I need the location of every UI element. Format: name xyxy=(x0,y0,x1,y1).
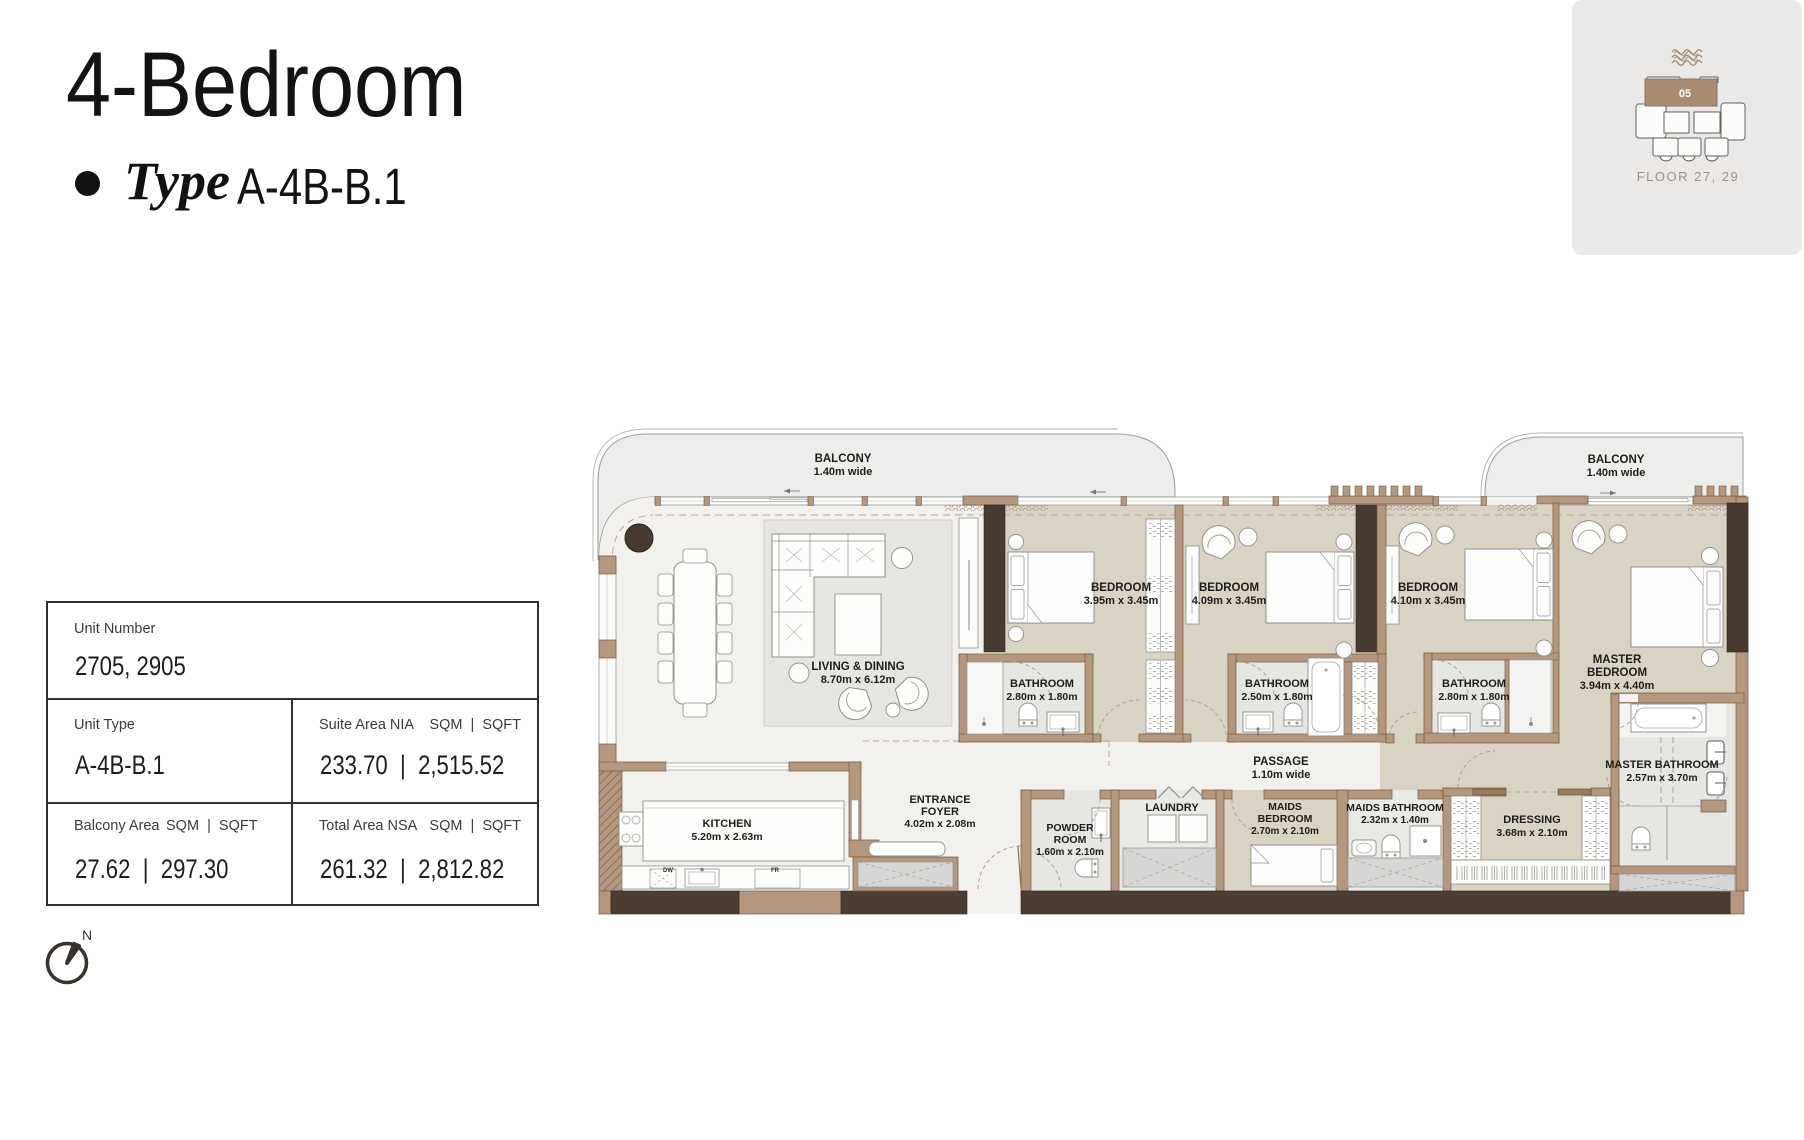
svg-text:ENTRANCE: ENTRANCE xyxy=(909,794,970,806)
svg-text:LIVING & DINING: LIVING & DINING xyxy=(811,661,904,673)
svg-text:2.57m x 3.70m: 2.57m x 3.70m xyxy=(1626,772,1697,784)
svg-text:MAIDS BATHROOM: MAIDS BATHROOM xyxy=(1346,802,1444,814)
svg-text:2.50m x 1.80m: 2.50m x 1.80m xyxy=(1241,691,1312,703)
svg-text:2.80m x 1.80m: 2.80m x 1.80m xyxy=(1006,691,1077,703)
svg-text:POWDER: POWDER xyxy=(1046,822,1094,834)
svg-text:4.10m x 3.45m: 4.10m x 3.45m xyxy=(1391,595,1466,607)
svg-text:2.70m x 2.10m: 2.70m x 2.10m xyxy=(1251,826,1319,837)
svg-text:DW: DW xyxy=(663,868,673,874)
svg-text:1.10m wide: 1.10m wide xyxy=(1252,769,1311,781)
svg-text:3.94m x 4.40m: 3.94m x 4.40m xyxy=(1580,680,1655,692)
svg-text:MAIDS: MAIDS xyxy=(1268,801,1302,813)
svg-text:1.60m x 2.10m: 1.60m x 2.10m xyxy=(1036,847,1104,858)
svg-text:2.80m x 1.80m: 2.80m x 1.80m xyxy=(1438,691,1509,703)
svg-text:BEDROOM: BEDROOM xyxy=(1258,813,1313,825)
svg-text:MASTER: MASTER xyxy=(1593,654,1642,666)
svg-text:BEDROOM: BEDROOM xyxy=(1091,582,1151,594)
svg-text:1.40m wide: 1.40m wide xyxy=(814,466,873,478)
svg-text:BEDROOM: BEDROOM xyxy=(1587,667,1647,679)
svg-text:BATHROOM: BATHROOM xyxy=(1442,678,1506,690)
svg-text:BEDROOM: BEDROOM xyxy=(1199,582,1259,594)
svg-text:BALCONY: BALCONY xyxy=(815,453,872,465)
svg-text:4.09m x 3.45m: 4.09m x 3.45m xyxy=(1192,595,1267,607)
svg-text:BATHROOM: BATHROOM xyxy=(1245,678,1309,690)
svg-text:BALCONY: BALCONY xyxy=(1588,454,1645,466)
svg-text:8.70m x 6.12m: 8.70m x 6.12m xyxy=(821,674,896,686)
svg-text:4.02m x 2.08m: 4.02m x 2.08m xyxy=(904,818,975,830)
svg-text:PASSAGE: PASSAGE xyxy=(1253,756,1309,768)
svg-text:5.20m x 2.63m: 5.20m x 2.63m xyxy=(691,831,762,843)
svg-text:MASTER BATHROOM: MASTER BATHROOM xyxy=(1605,759,1718,771)
svg-text:3.95m x 3.45m: 3.95m x 3.45m xyxy=(1084,595,1159,607)
svg-text:FOYER: FOYER xyxy=(921,806,959,818)
svg-text:3.68m x 2.10m: 3.68m x 2.10m xyxy=(1496,827,1567,839)
svg-text:2.32m x 1.40m: 2.32m x 1.40m xyxy=(1361,815,1429,826)
svg-text:FR: FR xyxy=(771,868,780,874)
svg-text:DRESSING: DRESSING xyxy=(1503,814,1560,826)
svg-text:BATHROOM: BATHROOM xyxy=(1010,678,1074,690)
svg-text:KITCHEN: KITCHEN xyxy=(703,818,752,830)
svg-text:BEDROOM: BEDROOM xyxy=(1398,582,1458,594)
svg-text:ROOM: ROOM xyxy=(1054,834,1087,846)
svg-text:1.40m wide: 1.40m wide xyxy=(1587,467,1646,479)
svg-text:LAUNDRY: LAUNDRY xyxy=(1145,802,1199,814)
